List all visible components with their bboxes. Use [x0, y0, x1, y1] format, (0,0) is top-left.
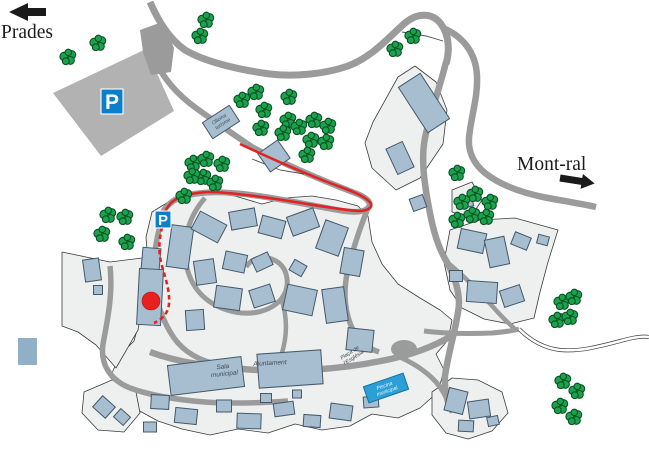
tree-icon: [299, 147, 315, 162]
tree-icon: [552, 398, 568, 413]
tree-icon: [100, 207, 116, 222]
tree-icon: [555, 373, 571, 388]
tree-icon: [566, 289, 582, 304]
building-shape: [222, 251, 247, 273]
tree-icon: [482, 194, 498, 209]
tree-icon: [449, 212, 465, 227]
building-shape: [340, 247, 364, 276]
village-map: Piscina municipal P P Prades Mont-ral Of…: [0, 0, 649, 450]
building-shape: [257, 350, 323, 388]
building-shape: [174, 407, 197, 424]
parking-sign-small: P: [155, 211, 171, 229]
building-shape: [258, 140, 290, 172]
tree-icon: [405, 28, 421, 43]
tree-icon: [234, 92, 250, 107]
building-shape: [214, 285, 243, 310]
tree-icon: [478, 209, 494, 224]
tree-icon: [198, 12, 214, 27]
tree-icon: [90, 35, 106, 50]
tree-icon: [569, 383, 585, 398]
building-shape: [458, 420, 474, 432]
tree-icon: [566, 409, 582, 424]
legend-building-swatch: [18, 338, 37, 365]
tree-icon: [60, 49, 76, 64]
building-shape: [329, 403, 353, 421]
building-shape: [193, 259, 216, 286]
destination-prades-label: Prades: [1, 22, 53, 43]
placa-esglesia-square: [391, 340, 417, 358]
building-shape: [185, 309, 204, 330]
building-shape: [293, 390, 302, 398]
tree-icon: [253, 120, 269, 135]
parking-sign-small-letter: P: [158, 212, 168, 229]
building-shape: [467, 399, 490, 419]
tree-icon: [306, 112, 322, 127]
tree-icon: [192, 28, 208, 43]
building-shape: [283, 284, 318, 316]
building-shape: [322, 287, 349, 324]
tree-icon: [318, 134, 334, 149]
building-shape: [450, 271, 463, 282]
destination-dot: [142, 292, 160, 310]
tree-icon: [275, 125, 291, 140]
tree-icon: [248, 84, 264, 99]
tree-icon: [256, 102, 272, 117]
building-shape: [303, 414, 321, 427]
tree-icon: [94, 226, 110, 241]
tree-icon: [303, 132, 319, 147]
parking-sign-large: P: [101, 89, 123, 114]
building-shape: [83, 258, 102, 282]
tree-icon: [320, 118, 336, 133]
parking-sign-large-letter: P: [105, 91, 119, 114]
building-shape: [229, 208, 258, 230]
building-shape: [217, 400, 232, 412]
building-shape: [151, 395, 170, 410]
building-shape: [466, 280, 497, 303]
tree-icon: [176, 188, 192, 203]
building-shape: [487, 415, 500, 426]
destination-montral-label: Mont-ral: [517, 154, 587, 175]
building-shape: [273, 401, 295, 417]
building-shape: [237, 413, 262, 429]
building-shape: [144, 422, 157, 432]
tree-icon: [119, 234, 135, 249]
tree-icon: [117, 209, 133, 224]
tree-icon: [449, 165, 465, 180]
tree-icon: [198, 151, 214, 166]
arrow-left-prades-icon: [9, 3, 46, 21]
tree-icon: [281, 89, 297, 104]
building-shape: [261, 394, 272, 403]
tree-icon: [562, 309, 578, 324]
tree-icon: [214, 156, 230, 171]
building-shape: [94, 286, 103, 295]
tree-icon: [387, 41, 403, 56]
building-shape: [141, 247, 161, 270]
tree-icon: [184, 168, 200, 183]
